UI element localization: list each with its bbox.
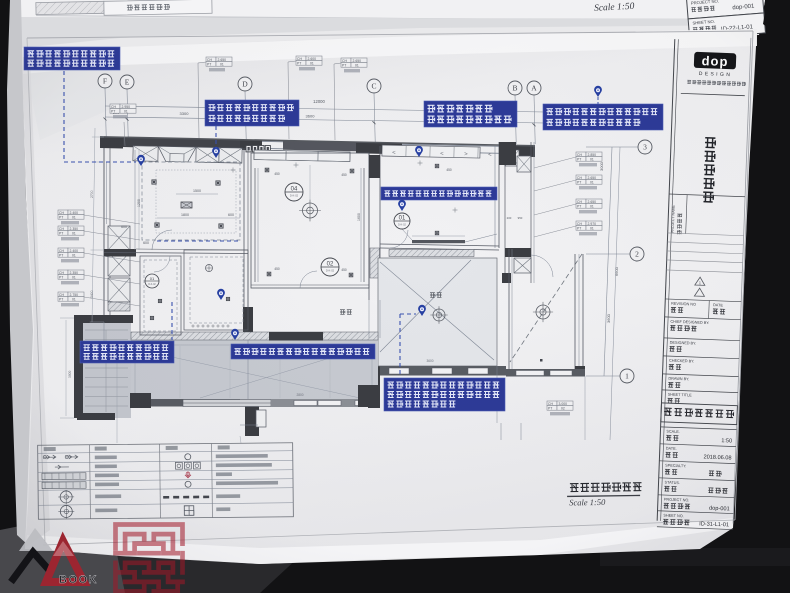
svg-text:BOOK: BOOK bbox=[59, 574, 98, 586]
svg-text:Scale 1:50: Scale 1:50 bbox=[594, 2, 635, 14]
